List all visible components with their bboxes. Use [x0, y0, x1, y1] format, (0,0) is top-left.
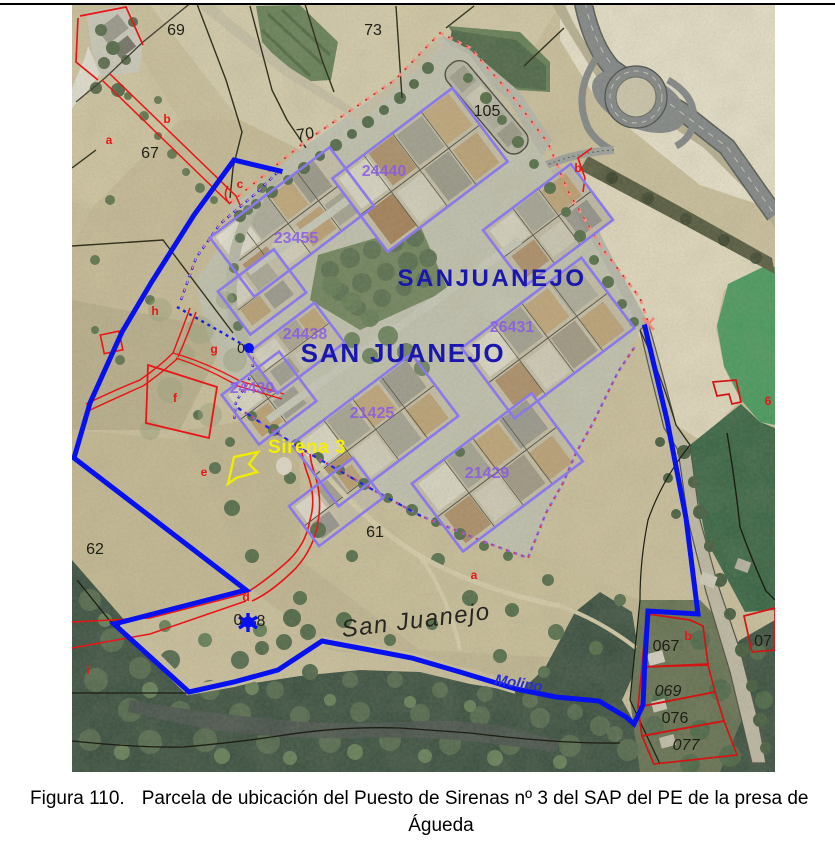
- svg-text:h: h: [151, 304, 158, 318]
- svg-text:a: a: [471, 568, 478, 582]
- svg-text:07: 07: [754, 633, 772, 650]
- svg-text:21429: 21429: [465, 465, 510, 482]
- svg-text:0: 0: [237, 340, 245, 356]
- svg-text:69: 69: [167, 22, 185, 39]
- svg-text:24430: 24430: [230, 380, 275, 397]
- svg-text:26431: 26431: [490, 319, 535, 336]
- svg-text:67: 67: [141, 145, 159, 162]
- svg-text:8: 8: [257, 613, 266, 630]
- svg-text:SAN JUANEJO: SAN JUANEJO: [301, 338, 506, 368]
- svg-text:c: c: [237, 177, 244, 191]
- svg-text:d: d: [242, 590, 249, 604]
- svg-text:SANJUANEJO: SANJUANEJO: [397, 265, 586, 292]
- svg-text:61: 61: [366, 524, 384, 541]
- svg-text:069: 069: [655, 683, 682, 700]
- svg-text:70: 70: [295, 125, 315, 144]
- svg-text:21425: 21425: [350, 405, 395, 422]
- svg-text:62: 62: [86, 541, 104, 558]
- svg-text:067: 067: [653, 638, 680, 655]
- svg-text:6: 6: [765, 394, 772, 408]
- svg-text:Sirena 3: Sirena 3: [268, 437, 346, 458]
- svg-text:a: a: [106, 133, 113, 147]
- svg-text:23455: 23455: [274, 230, 319, 247]
- svg-text:b: b: [163, 112, 170, 126]
- svg-text:0: 0: [234, 612, 243, 629]
- svg-text:105: 105: [474, 103, 501, 120]
- svg-text:077: 077: [673, 737, 701, 754]
- svg-text:e: e: [201, 465, 208, 479]
- svg-text:076: 076: [662, 710, 689, 727]
- svg-text:i: i: [86, 663, 89, 677]
- svg-text:g: g: [210, 342, 217, 356]
- svg-text:b: b: [574, 161, 581, 175]
- svg-text:73: 73: [364, 22, 382, 39]
- svg-text:b: b: [684, 629, 691, 643]
- svg-text:24440: 24440: [362, 163, 407, 180]
